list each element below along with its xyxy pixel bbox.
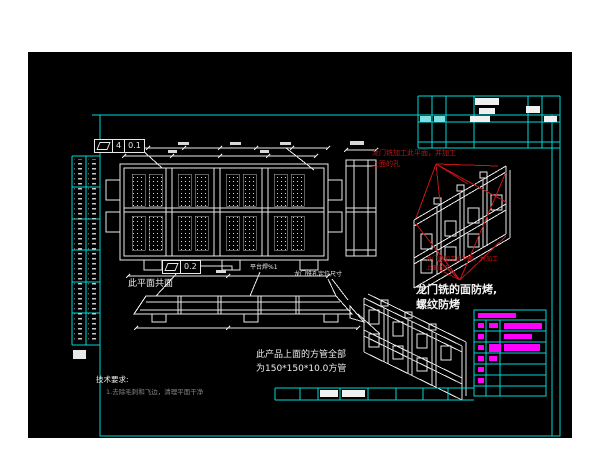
note-gantry-mill-line1: 龙门铣的面防烤, — [416, 283, 497, 298]
label-platform-weld: 平台焊%1 — [250, 262, 278, 271]
process-table-grid — [474, 310, 546, 396]
process-table-entries — [478, 313, 542, 383]
front-view — [106, 146, 342, 278]
red-note-mid-line2: 上面的孔 — [426, 264, 498, 273]
note-gantry-mill-line2: 螺纹防烤 — [416, 298, 497, 313]
gdt-tolerance-value: 0.2 — [181, 261, 200, 273]
label-coplanar: 此平面共面 — [128, 276, 173, 289]
gdt-flatness-frame-top: 4 0.1 — [94, 139, 145, 153]
flatness-icon — [95, 140, 113, 152]
note-square-tube-line2: 为150*150*10.0方管 — [256, 363, 346, 377]
red-note-mid: 龙门铣加工此平面，并加工 上面的孔 — [426, 255, 498, 273]
tech-requirements-title: 技术要求: — [96, 374, 129, 385]
bottom-strip-cells — [320, 390, 365, 397]
revision-strip-microtext — [73, 159, 98, 359]
tech-requirements-item: 1.去除毛刺和飞边，清理平面干净 — [106, 386, 203, 396]
note-square-tube: 此产品上面的方管全部 为150*150*10.0方管 — [256, 349, 346, 376]
title-block-cells — [420, 98, 557, 122]
red-note-top-line2: 上面的孔 — [372, 159, 456, 170]
bottom-strip-grid — [275, 388, 474, 400]
red-note-mid-line1: 龙门铣加工此平面，并加工 — [426, 255, 498, 264]
note-gantry-mill: 龙门铣的面防烤, 螺纹防烤 — [416, 283, 497, 313]
gdt-count-value: 4 — [113, 140, 125, 152]
note-square-tube-line1: 此产品上面的方管全部 — [256, 349, 346, 363]
gdt-flatness-frame-bottom: 0.2 — [162, 260, 201, 274]
dimension-text-marks — [128, 141, 364, 273]
red-note-top-line1: 龙门铣加工此平面，并加工 — [372, 148, 456, 159]
gdt-tolerance-value: 0.1 — [125, 140, 144, 152]
red-note-top: 龙门铣加工此平面，并加工 上面的孔 — [372, 148, 456, 169]
flatness-icon — [163, 261, 181, 273]
cad-drawing-canvas[interactable]: 4 0.1 0.2 此平面共面 平台焊%1 龙门铣孔定位尺寸 龙门铣加工此平面，… — [28, 52, 572, 438]
label-gantry-hole-dim: 龙门铣孔定位尺寸 — [294, 269, 342, 278]
